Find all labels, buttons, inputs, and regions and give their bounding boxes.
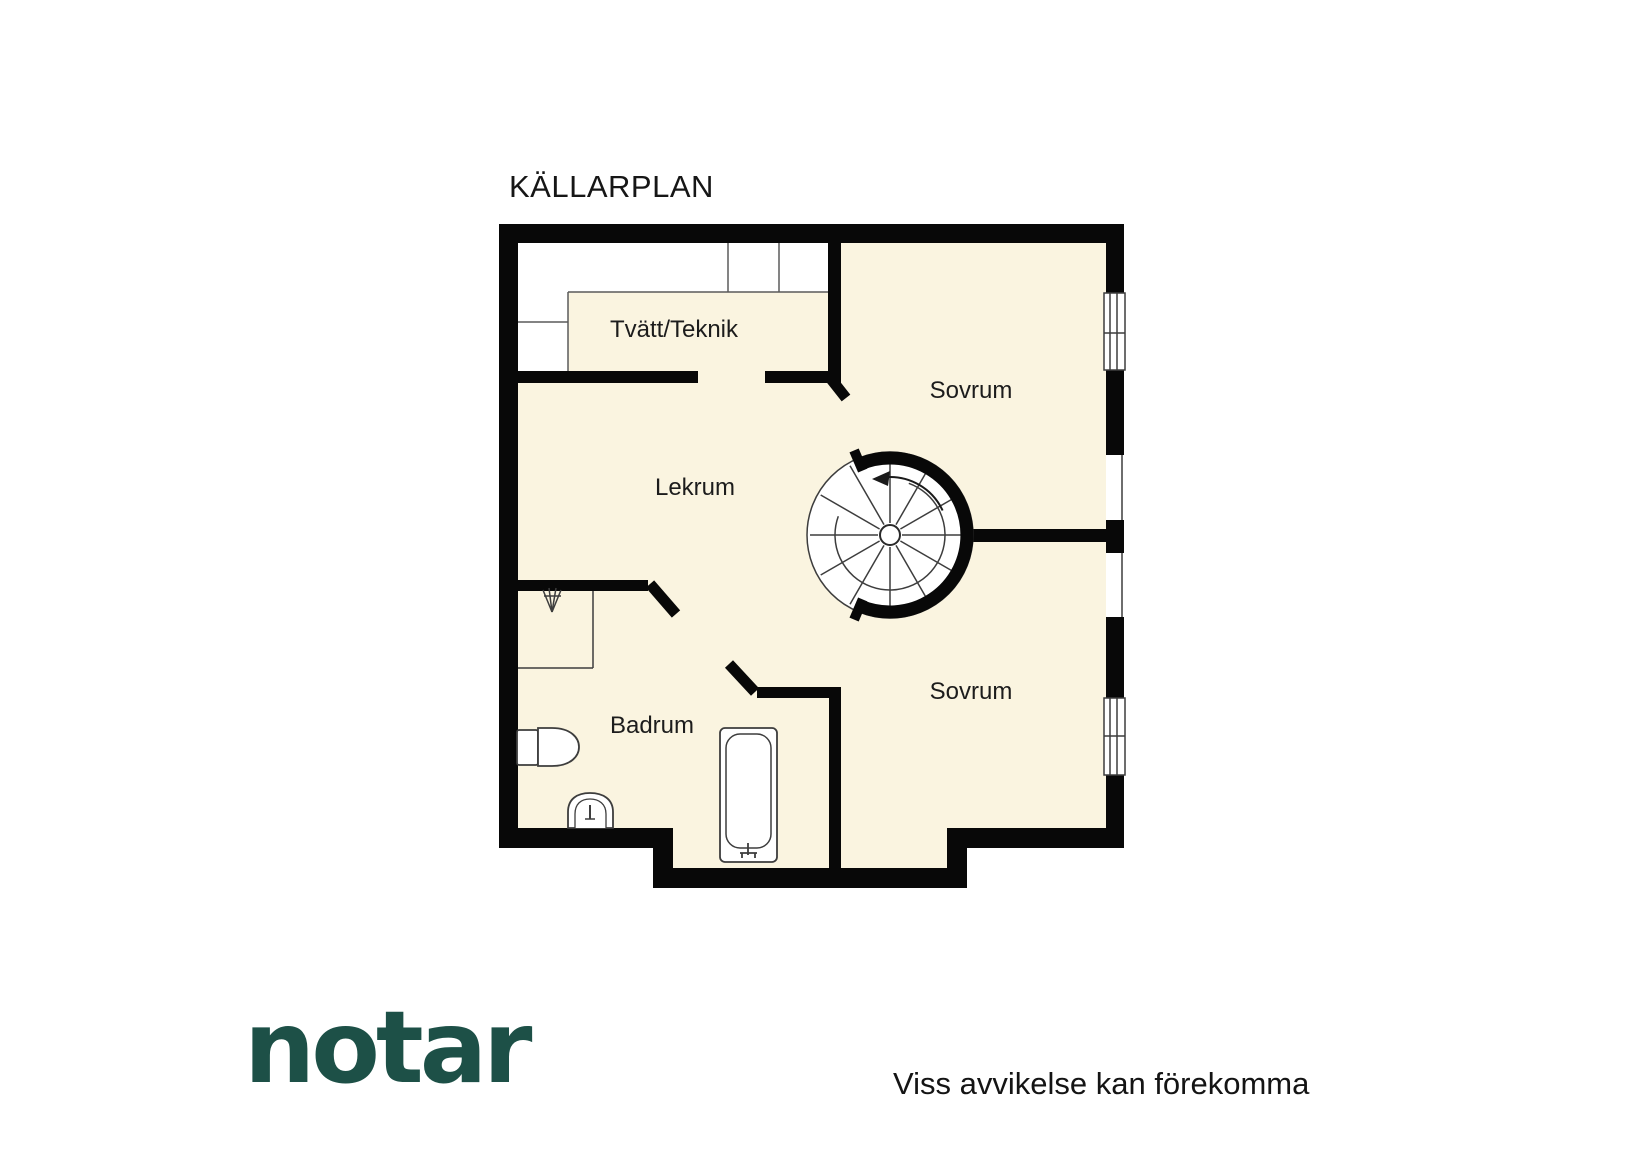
- window-top: [1104, 293, 1125, 370]
- wall-tvatt-bottom-left: [518, 371, 698, 383]
- room-label-lekrum: Lekrum: [655, 474, 735, 502]
- window-bottom: [1104, 698, 1125, 775]
- spiral-staircase: [807, 450, 973, 619]
- bathtub-inner: [726, 734, 771, 848]
- counter-left-column: [518, 243, 568, 372]
- wall-sovrum-left: [828, 243, 841, 383]
- bathtub: [720, 728, 777, 862]
- wall-stair-right: [955, 529, 1106, 542]
- toilet: [517, 728, 579, 766]
- notar-logo: notar: [244, 998, 529, 1098]
- toilet-bowl: [538, 728, 579, 766]
- wall-opening-upper: [1106, 455, 1124, 520]
- toilet-tank: [517, 730, 538, 765]
- sink: [568, 793, 613, 828]
- page: KÄLLARPLAN Tvätt/Teknik Sovrum Lekrum Ba…: [0, 0, 1650, 1166]
- wall-badrum-top: [518, 580, 648, 591]
- wall-sovrum2-left: [829, 687, 841, 888]
- disclaimer-text: Viss avvikelse kan förekomma: [893, 1066, 1309, 1102]
- wall-opening-lower: [1106, 553, 1124, 617]
- room-label-sovrum-bottom: Sovrum: [930, 678, 1013, 706]
- stair-center-pole: [880, 525, 900, 545]
- wall-sovrum2-top: [757, 687, 841, 698]
- room-label-sovrum-top: Sovrum: [930, 377, 1013, 405]
- plan-title: KÄLLARPLAN: [509, 169, 714, 205]
- room-label-tvatt-teknik: Tvätt/Teknik: [610, 316, 738, 344]
- room-label-badrum: Badrum: [610, 712, 694, 740]
